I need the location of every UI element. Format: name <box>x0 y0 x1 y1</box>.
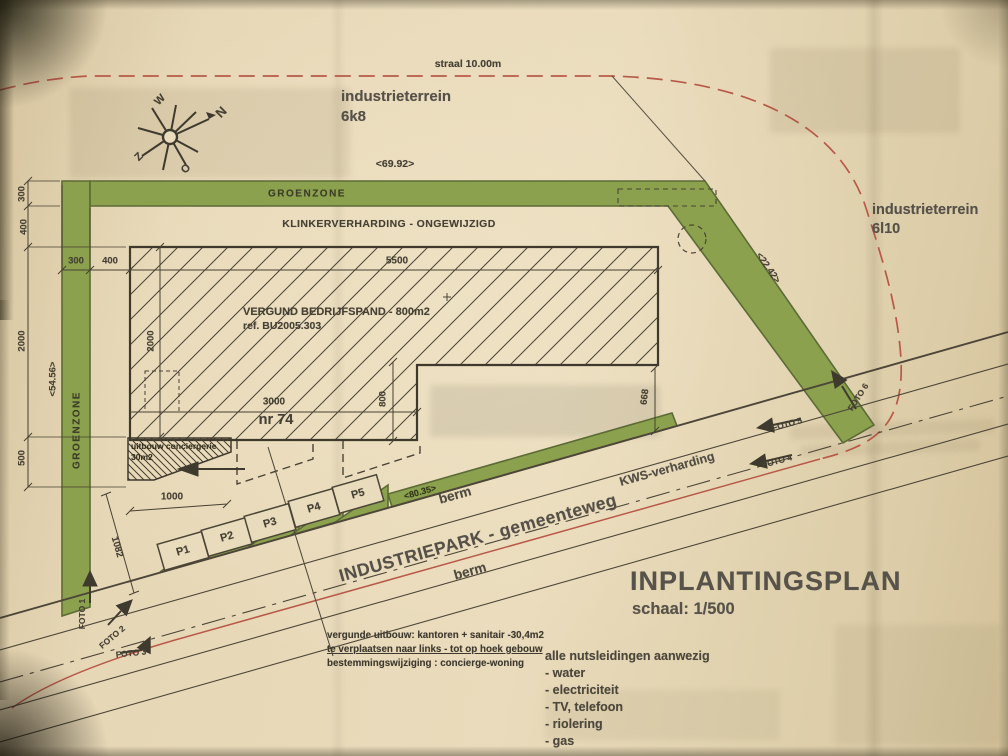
dim-3000: 3000 <box>263 397 285 408</box>
dim-2000-inner: 2000 <box>146 330 157 351</box>
relocated-annex-dashed <box>237 441 420 484</box>
house-number: nr 74 <box>259 412 294 428</box>
site-plan-drawing <box>0 0 1008 756</box>
building-ref: ref. BU2005.303 <box>243 320 321 332</box>
dim-2000-v: 2000 <box>17 330 28 351</box>
photo-label-1: FOTO 1 <box>77 599 87 630</box>
greenzone-left-label: GROENZONE <box>72 391 83 469</box>
dim-1000: 1000 <box>161 492 183 503</box>
building-label: VERGUND BEDRIJFSPAND - 800m2 <box>243 306 430 318</box>
dim-668: 668 <box>639 388 652 405</box>
parcel-e-code: 6l10 <box>872 221 900 237</box>
annex-label-line1: uitbouw conciergerie <box>131 441 217 451</box>
scanned-site-plan: straal 10.00m industrieterrein 6k8 indus… <box>0 0 1008 756</box>
dim-400-v: 400 <box>19 219 30 235</box>
dim-500-v: 500 <box>17 450 28 466</box>
dim-400-h: 400 <box>102 256 118 267</box>
note-line-2: te verplaatsen naar links - tot op hoek … <box>327 644 543 655</box>
parcel-e-label: industrieterrein <box>872 202 978 218</box>
dim-5500: 5500 <box>386 256 408 267</box>
note-line-3: bestemmingswijziging : concierge-woning <box>327 658 524 669</box>
compass-rose <box>138 105 216 170</box>
plan-scale: schaal: 1/500 <box>632 600 735 619</box>
building-footprint <box>130 247 658 440</box>
utilities-item: - TV, telefoon <box>545 700 623 714</box>
annex-label-line2: 30m2 <box>131 452 153 462</box>
paving-label: KLINKERVERHARDING - ONGEWIJZIGD <box>282 218 495 230</box>
parcel-nw-code: 6k8 <box>341 108 366 125</box>
dim-69-92: <69.92> <box>376 158 415 170</box>
note-line-1: vergunde uitbouw: kantoren + sanitair -3… <box>327 630 544 641</box>
utilities-item: - electriciteit <box>545 683 619 697</box>
dim-800: 800 <box>378 391 389 407</box>
dim-300-h: 300 <box>68 256 84 267</box>
utilities-item: - riolering <box>545 717 603 731</box>
utilities-header: alle nutsleidingen aanwezig <box>545 649 710 663</box>
greenzone-top-label: GROENZONE <box>268 189 346 200</box>
dim-54-56: <54.56> <box>48 362 59 397</box>
utilities-item: - gas <box>545 734 574 748</box>
parcel-nw-label: industrieterrein <box>341 88 451 105</box>
utilities-item: - water <box>545 666 585 680</box>
dim-300-v: 300 <box>17 186 28 202</box>
street-width-note: straal 10.00m <box>435 58 502 70</box>
parcel-split-line <box>612 76 705 181</box>
plan-title: INPLANTINGSPLAN <box>630 566 902 597</box>
